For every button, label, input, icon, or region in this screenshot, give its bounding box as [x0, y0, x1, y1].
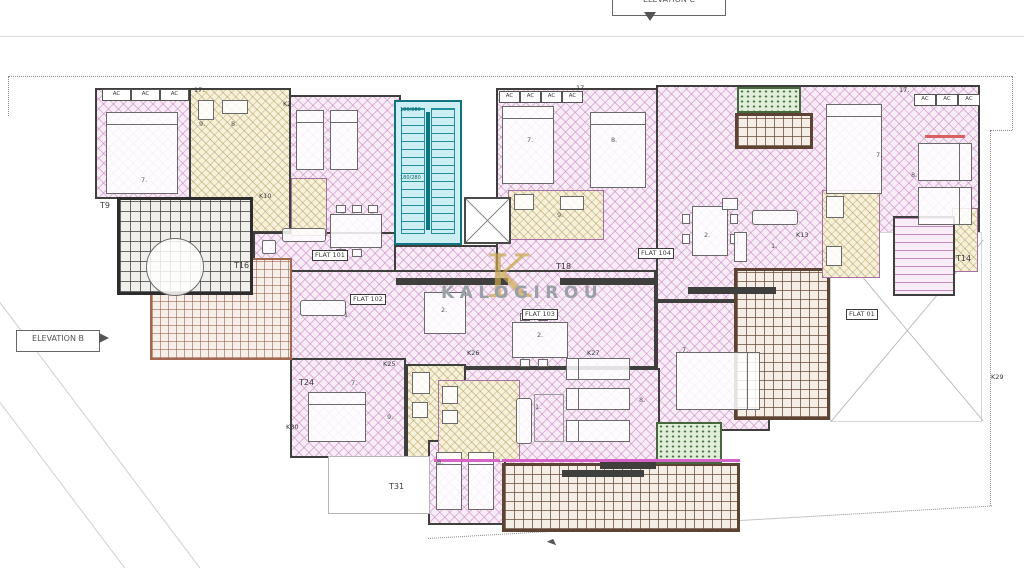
chair — [682, 234, 690, 244]
room-number: 1. — [771, 243, 777, 250]
room-number: 7. — [141, 177, 147, 184]
floor-plan-canvas: K KALOGIROU ELEVATION C ELEVATION B FLAT… — [0, 0, 1024, 568]
key-label: 17. — [194, 87, 204, 94]
bed-twin — [566, 420, 630, 442]
ac-unit: AC — [160, 89, 189, 101]
bath-fixture — [222, 100, 248, 114]
bed-double — [676, 352, 760, 410]
key-label: K10 — [259, 193, 272, 200]
bed-twin — [918, 187, 972, 225]
chair — [538, 359, 548, 367]
bed-double — [826, 104, 882, 194]
terrace-label: T14 — [956, 255, 971, 264]
bath-fixture — [412, 402, 428, 418]
stair-flight-left — [401, 108, 425, 234]
bath-fixture — [412, 372, 430, 394]
room-number: 7. — [876, 152, 882, 159]
wall-stub-1 — [396, 278, 508, 285]
room-number: 7. — [682, 347, 688, 354]
room-number: 8. — [231, 121, 237, 128]
wall-stub-3 — [688, 287, 776, 294]
room-number: 9. — [199, 121, 205, 128]
flat104-balcony-top — [735, 113, 813, 149]
chair — [352, 249, 362, 257]
room-number: 1. — [535, 404, 541, 411]
room-number: 8. — [437, 459, 443, 466]
bed-twin — [566, 358, 630, 380]
sofa — [516, 398, 532, 444]
sofa — [752, 210, 798, 225]
chair — [682, 214, 690, 224]
chair — [368, 205, 378, 213]
bath-fixture — [514, 194, 534, 210]
flat-label: FLAT 104 — [638, 248, 674, 259]
key-label: 17. — [899, 87, 909, 94]
key-label: K30 — [286, 424, 299, 431]
chair — [520, 359, 530, 367]
terrace-label: T16 — [234, 262, 249, 271]
stair-divider — [426, 112, 430, 230]
room-number: 7. — [527, 137, 533, 144]
chair — [336, 205, 346, 213]
ac-unit: AC — [520, 91, 541, 103]
site-boundary-right-step — [990, 130, 1012, 131]
armchair — [262, 240, 276, 254]
red-accent-line — [925, 135, 965, 138]
balcony-railing-1 — [434, 459, 500, 462]
room-number: 8. — [911, 172, 917, 179]
rug — [534, 394, 564, 442]
elevator-shaft — [464, 197, 511, 244]
elevation-c-arrow — [644, 12, 656, 21]
room-number: 8. — [639, 397, 645, 404]
bed-twin — [330, 110, 358, 170]
bath-fixture — [560, 196, 584, 210]
terrace-label: T9 — [100, 202, 110, 211]
kitchen-fixture — [442, 386, 458, 404]
elevation-b-callout: ELEVATION B — [16, 330, 100, 352]
key-label: K27 — [587, 350, 600, 357]
ac-unit: AC — [102, 89, 131, 101]
key-label: K25 — [383, 361, 396, 368]
planter-bottom — [656, 422, 722, 464]
terrace-label: T31 — [389, 483, 404, 492]
room-number: 1. — [344, 312, 350, 319]
tv-unit — [734, 232, 747, 262]
elevation-c-callout: ELEVATION C — [612, 0, 726, 16]
stair-dimension: 180/280 — [400, 176, 421, 182]
wall-stub-2 — [560, 278, 658, 285]
boundary-arrow — [547, 539, 556, 548]
dining-table — [692, 206, 728, 256]
site-boundary-right-2 — [990, 130, 991, 506]
flat-label: FLAT 102 — [350, 294, 386, 305]
coffee-table — [722, 198, 738, 210]
site-boundary-left — [8, 76, 9, 116]
main-staircase — [394, 100, 462, 245]
sofa — [300, 300, 346, 316]
dining-table — [330, 214, 382, 248]
site-boundary-right-1 — [1012, 76, 1013, 130]
balcony-railing-2 — [502, 459, 740, 462]
kitchen-fixture — [442, 410, 458, 424]
room-number: 7. — [351, 380, 357, 387]
room-number: 9. — [557, 212, 563, 219]
planter-top — [737, 87, 801, 113]
key-label: K29 — [991, 374, 1004, 381]
page-rule-line — [0, 36, 1024, 37]
ac-unit: AC — [936, 94, 958, 106]
key-label: K26 — [467, 350, 480, 357]
flat-label: FLAT 01 — [846, 309, 878, 320]
wall-stub-4 — [562, 470, 644, 477]
elevation-b-arrow — [99, 333, 109, 343]
flat-label: FLAT 101 — [312, 250, 348, 261]
bath-fixture — [198, 100, 214, 120]
bed-twin — [566, 388, 630, 410]
room-number: 2. — [537, 332, 543, 339]
ac-unit: AC — [958, 94, 980, 106]
stair-dimension: 180/280 — [400, 108, 421, 114]
parking-box — [328, 456, 430, 514]
room-number: 2. — [441, 307, 447, 314]
bed-twin — [918, 143, 972, 181]
dining-table — [512, 322, 568, 358]
terrace-label: T24 — [299, 379, 314, 388]
side-staircase — [893, 216, 955, 296]
bed-double — [308, 392, 366, 442]
bed-twin — [296, 110, 324, 170]
site-boundary-top — [8, 76, 1012, 77]
sofa — [282, 228, 326, 242]
room-number: 8. — [611, 137, 617, 144]
terrace-label: T18 — [556, 263, 571, 272]
key-label: K13 — [796, 232, 809, 239]
ac-unit: AC — [914, 94, 936, 106]
ac-unit: AC — [499, 91, 520, 103]
ac-unit: AC — [131, 89, 160, 101]
key-label: K2 — [283, 101, 291, 108]
ac-unit: AC — [562, 91, 583, 103]
bath-fixture — [826, 196, 844, 218]
bath-fixture — [826, 246, 842, 266]
bed-double — [502, 106, 554, 184]
flat-label: FLAT 103 — [522, 309, 558, 320]
stair-flight-right — [431, 108, 455, 234]
chair — [352, 205, 362, 213]
room-number: 2. — [704, 232, 710, 239]
ac-unit: AC — [541, 91, 562, 103]
chair — [730, 214, 738, 224]
room-number: 9. — [387, 414, 393, 421]
site-diagonal-2 — [0, 322, 157, 568]
bed-double — [590, 112, 646, 188]
veranda-round-table — [146, 238, 204, 296]
